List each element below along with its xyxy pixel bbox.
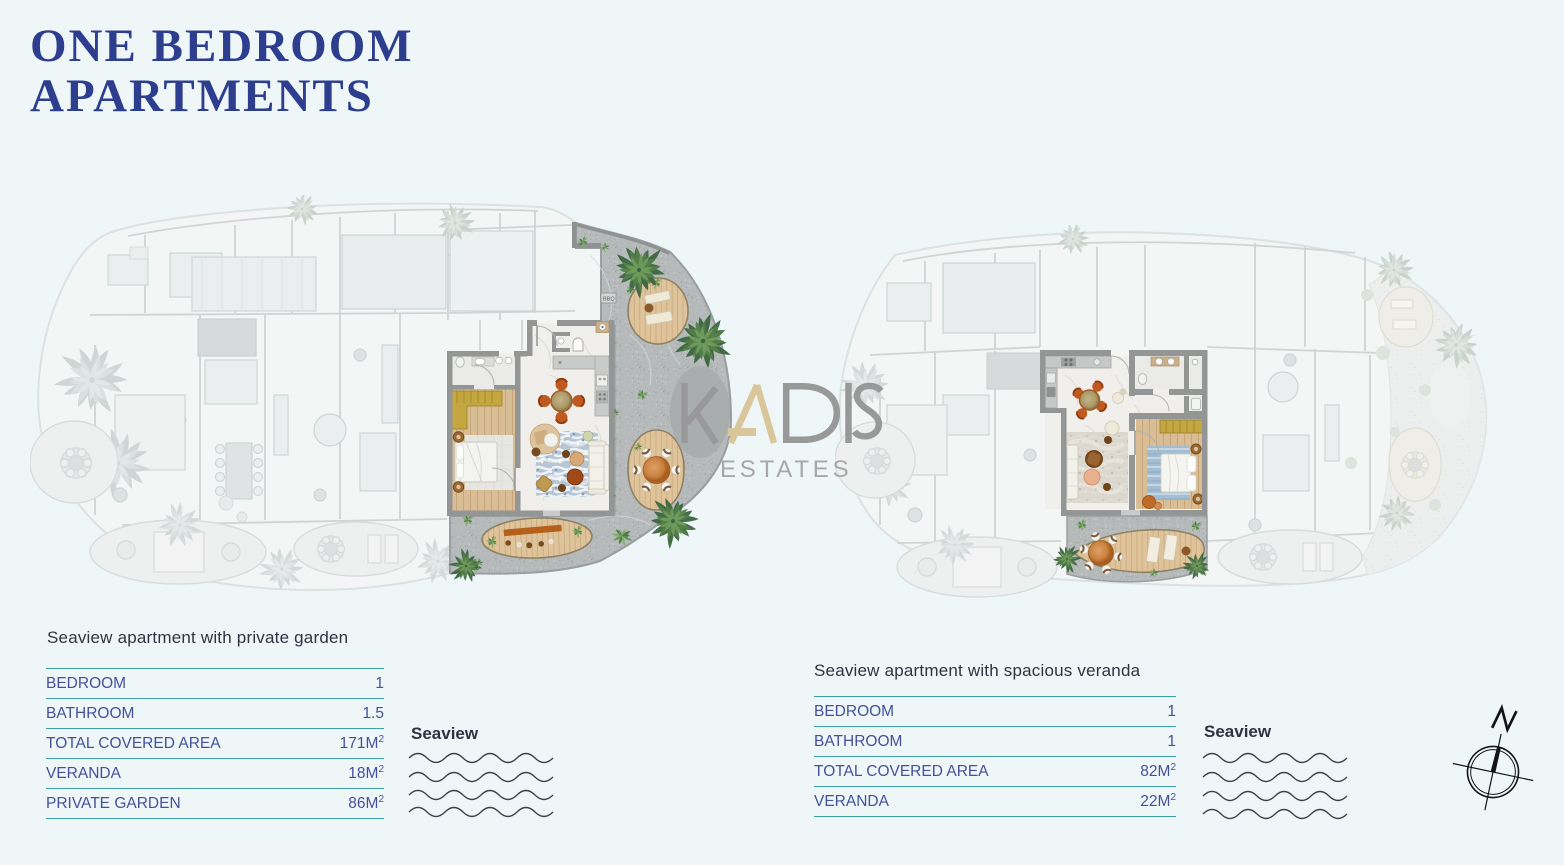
svg-text:BBQ: BBQ [603, 297, 615, 303]
svg-text:ESTATES: ESTATES [720, 456, 852, 483]
